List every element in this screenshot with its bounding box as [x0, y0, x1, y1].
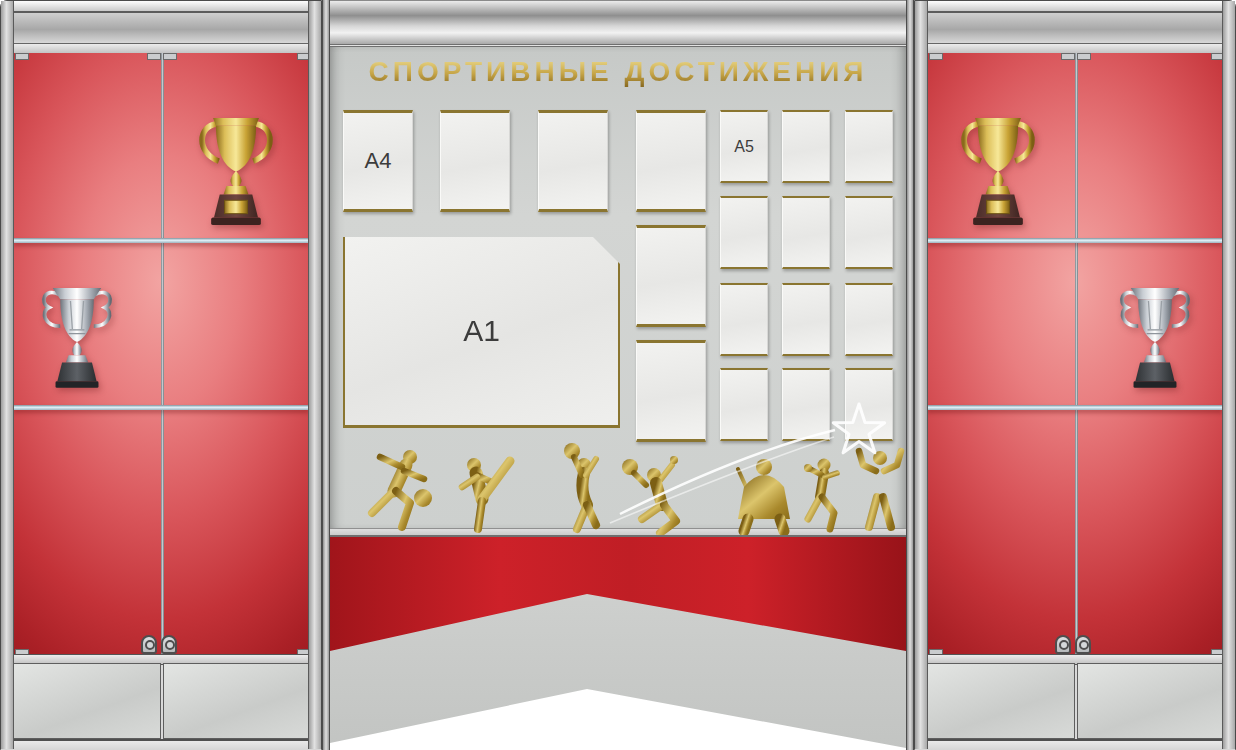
cabinet-left-frame: [915, 1, 928, 749]
volleyball-serve-icon: [564, 443, 596, 529]
lower-cupboard-door: [1077, 663, 1225, 739]
hockey-goalie-icon: [738, 459, 790, 531]
left-trophy-cabinet: [0, 0, 322, 750]
a5-pocket: [720, 196, 768, 269]
panel-left-rail: [322, 0, 330, 750]
cabinet-base-rail: [1, 739, 321, 750]
silver-cup-trophy: [35, 281, 119, 405]
shelf-clip: [15, 53, 29, 60]
glass-shelf: [927, 405, 1223, 410]
a5-pocket: [782, 196, 830, 269]
cabinet-right-frame: [308, 1, 321, 749]
a5-pocket: [782, 110, 830, 183]
glass-door-divider: [161, 53, 164, 654]
glass-door-divider: [1075, 53, 1078, 654]
shelf-clip: [1061, 53, 1075, 60]
a5-pocket: [720, 283, 768, 356]
shelf-clip: [147, 53, 161, 60]
cabinet-left-frame: [1, 1, 14, 749]
a4-pocket: A4: [343, 110, 413, 212]
center-info-board: СПОРТИВНЫЕ ДОСТИЖЕНИЯ A4A5A1: [322, 0, 914, 750]
shelf-clip: [929, 53, 943, 60]
glass-shelf: [13, 405, 309, 410]
panel-right-rail: [906, 0, 914, 750]
silver-cup-trophy: [1113, 281, 1197, 405]
a5-pocket: [845, 196, 893, 269]
right-trophy-cabinet: [914, 0, 1236, 750]
a4-pocket: [440, 110, 510, 212]
sport-silhouettes-row: [322, 441, 914, 535]
cabinet-base-rail: [915, 739, 1235, 750]
a1-pocket-face: A1: [345, 237, 618, 425]
shelf-clip: [1077, 53, 1091, 60]
a4-pocket: [636, 110, 706, 212]
a5-pocket: [720, 368, 768, 441]
cabinet-top-cap: [915, 1, 1235, 13]
gold-cup-trophy: [955, 109, 1041, 239]
cabinet-right-frame: [1222, 1, 1235, 749]
champion-flex-icon: [859, 451, 901, 527]
board-title: СПОРТИВНЫЕ ДОСТИЖЕНИЯ: [322, 56, 914, 88]
boxer-icon: [804, 459, 837, 530]
a5-pocket: [845, 110, 893, 183]
a5-pocket: A5: [720, 110, 768, 183]
door-lock-grommet: [1055, 635, 1071, 654]
cabinet-header-band: [11, 13, 311, 44]
lower-cupboard-door: [13, 663, 161, 739]
door-lock-grommet: [141, 635, 157, 654]
a5-pocket-label: A5: [734, 138, 754, 156]
lower-cupboard-door: [163, 663, 311, 739]
a1-pocket-label: A1: [463, 314, 500, 348]
a4-pocket-label: A4: [365, 148, 392, 174]
a5-pocket: [845, 368, 893, 441]
shelf-clip: [163, 53, 177, 60]
door-lock-grommet: [161, 635, 177, 654]
a5-pocket: [845, 283, 893, 356]
a1-pocket: A1: [343, 237, 620, 428]
lower-cupboard-door: [927, 663, 1075, 739]
a5-pocket: [782, 283, 830, 356]
gold-cup-trophy: [193, 109, 279, 239]
karate-kick-icon: [462, 458, 510, 529]
door-lock-grommet: [1075, 635, 1091, 654]
a5-pocket: [782, 368, 830, 441]
soccer-player-icon: [372, 450, 432, 527]
cabinet-top-cap: [1, 1, 321, 13]
cabinet-header-band: [925, 13, 1225, 44]
a4-pocket: [636, 340, 706, 442]
a4-pocket: [538, 110, 608, 212]
a4-pocket: [636, 225, 706, 327]
board-header-bar: [322, 0, 914, 47]
tennis-jump-icon: [622, 456, 678, 533]
